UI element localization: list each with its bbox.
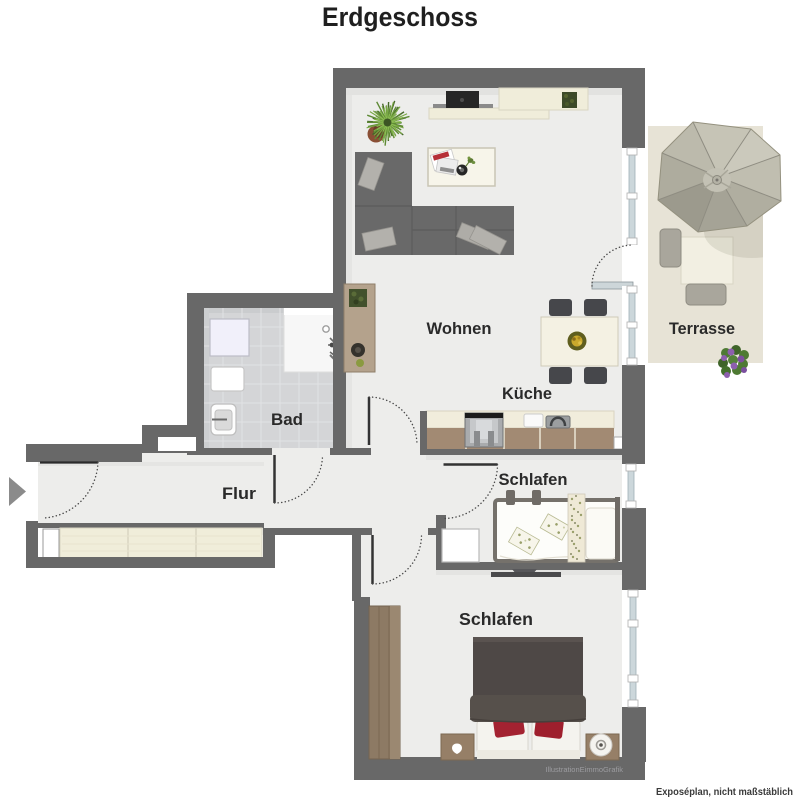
svg-text:Erdgeschoss: Erdgeschoss (322, 2, 478, 32)
svg-text:Wohnen: Wohnen (427, 319, 492, 338)
svg-text:Flur: Flur (222, 484, 256, 503)
svg-text:IllustrationEimmoGrafik: IllustrationEimmoGrafik (545, 765, 623, 774)
svg-text:Bad: Bad (271, 410, 303, 429)
svg-text:Terrasse: Terrasse (669, 319, 735, 338)
svg-text:Schlafen: Schlafen (459, 609, 533, 629)
svg-text:Küche: Küche (502, 384, 552, 403)
svg-text:Exposéplan, nicht maßstäblich: Exposéplan, nicht maßstäblich (656, 786, 793, 798)
svg-text:Schlafen: Schlafen (499, 470, 568, 489)
